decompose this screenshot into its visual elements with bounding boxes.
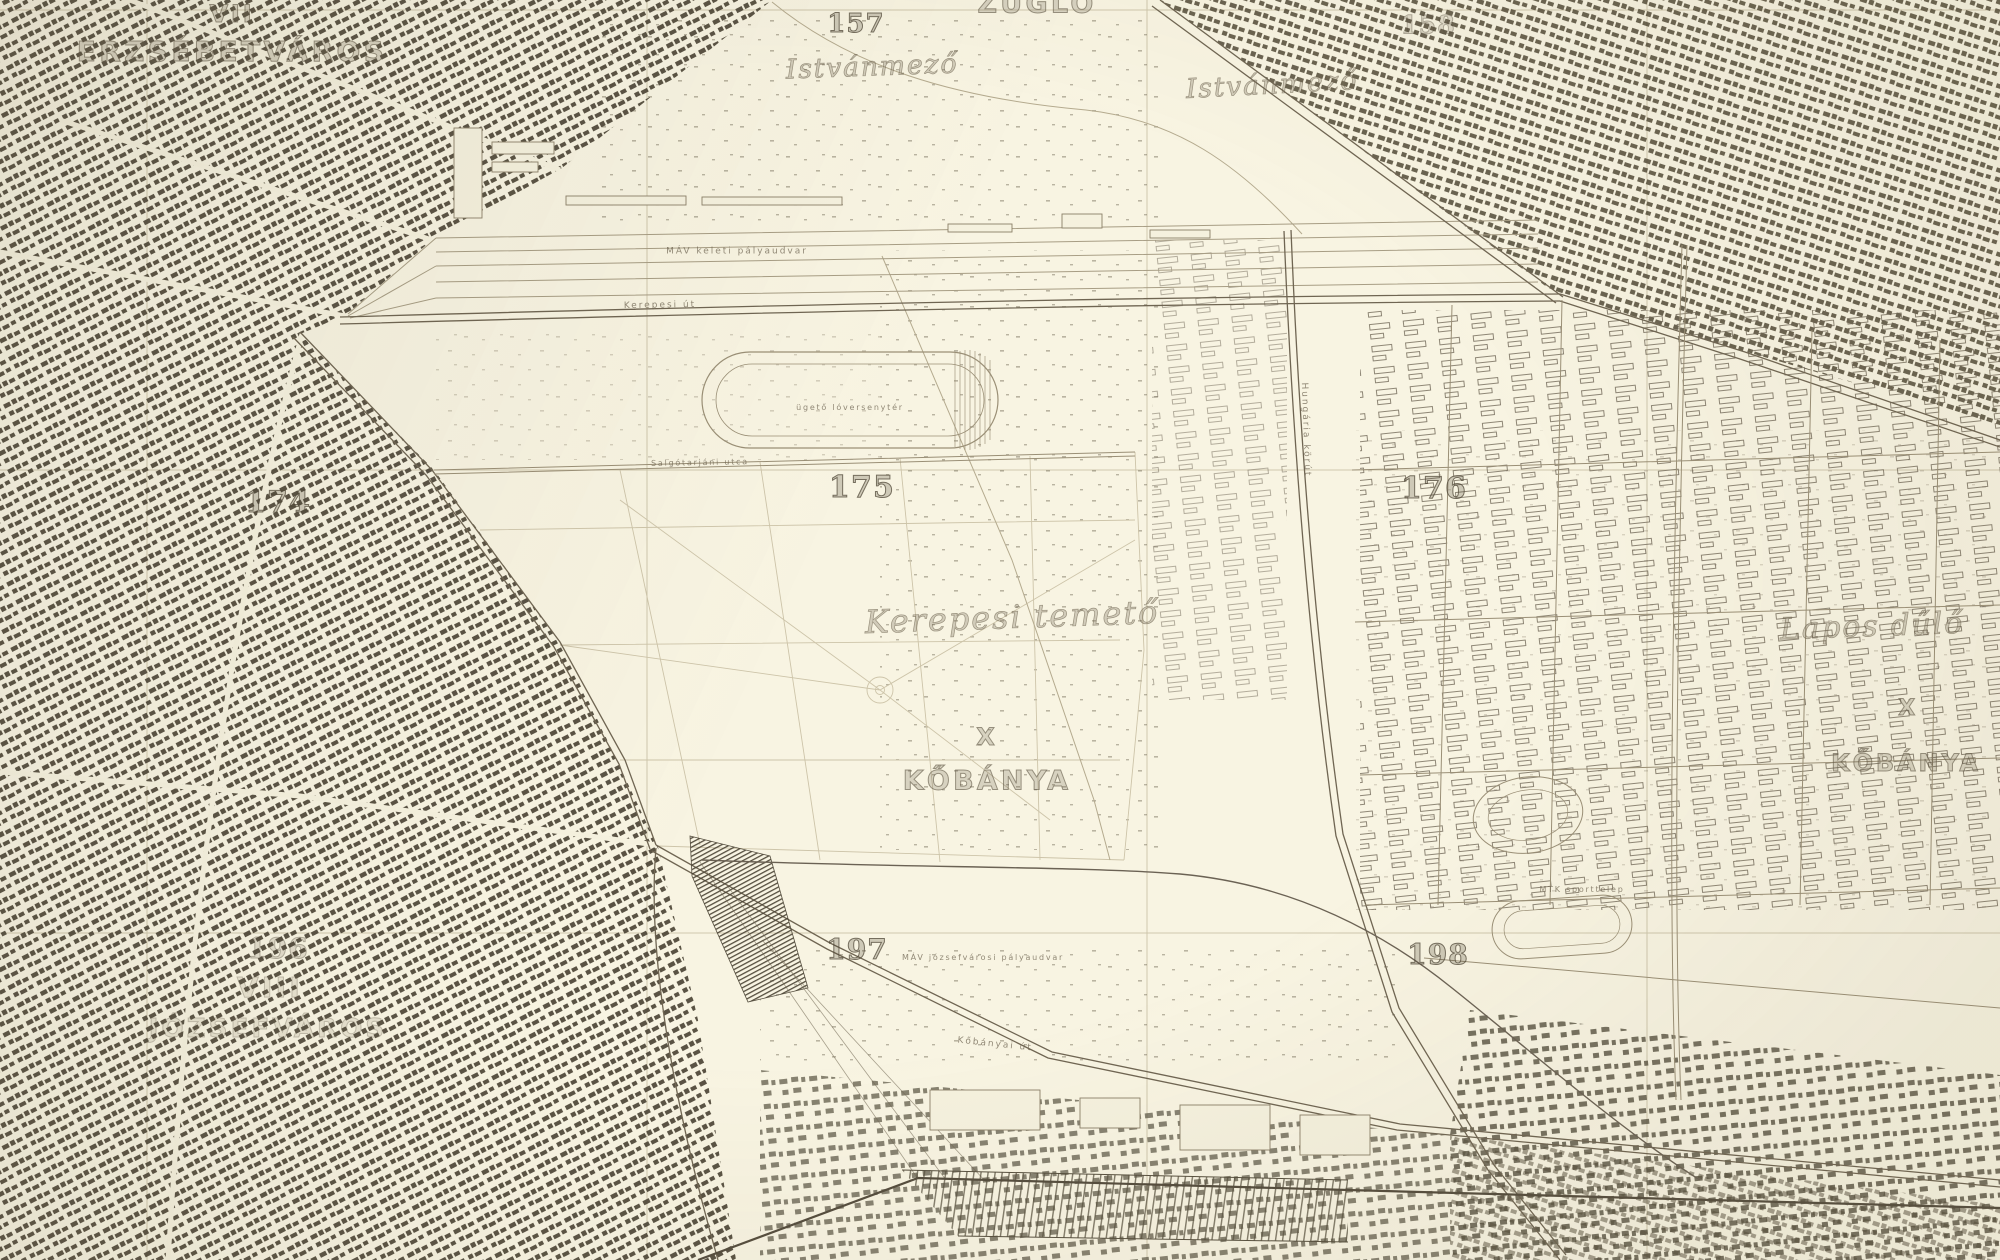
district-label-viii: VIII: [237, 974, 303, 1002]
district-label-kobanya-east: KŐBÁNYA: [1831, 751, 1981, 775]
district-label-zuglo: ZUGLÓ: [977, 0, 1096, 18]
minor-label-ugeto: ügető lóversenytér: [796, 404, 904, 412]
minor-label-mtk-sporttelep: MTK sporttelep: [1539, 886, 1624, 894]
district-label-jozsefvaros: JÓZSEFVÁROS: [149, 1016, 388, 1042]
district-label-vii: VII: [209, 2, 254, 26]
district-label-x-center: X: [976, 725, 997, 749]
street-label-salgotarjani-utca: Salgótarjáni utca: [651, 458, 749, 468]
grid-number-174: 174: [245, 488, 311, 518]
grid-number-175: 175: [829, 473, 895, 503]
street-label-kerepesi-ut: Kerepesi út: [624, 301, 696, 311]
grid-number-197: 197: [826, 936, 888, 964]
grid-number-176: 176: [1401, 474, 1467, 504]
place-label-kerepesi-temeto: Kerepesi temető: [864, 596, 1159, 638]
minor-label-mav-keleti: MÁV keleti pályaudvar: [666, 248, 808, 257]
minor-label-mav-jozsefvarosi: MÁV józsefvárosi pályaudvar: [902, 954, 1064, 962]
street-label-hungaria-korut: Hungária körút: [1299, 382, 1311, 477]
district-label-erzsebetvaros: ERZSÉBETVÁROS: [77, 38, 388, 66]
grid-number-158: 158: [1400, 13, 1455, 38]
place-label-istvanmezo-west: Istvánmező: [785, 51, 958, 84]
map-canvas: VII ERZSÉBETVÁROS 157 Istvánmező ZUGLÓ I…: [0, 0, 2000, 1260]
district-label-x-east: X: [1898, 698, 1918, 720]
grid-number-198: 198: [1407, 941, 1469, 969]
grid-number-157: 157: [827, 11, 884, 37]
grid-number-196: 196: [247, 935, 309, 963]
place-label-lapos-dulo: Lapos dűlő: [1779, 609, 1964, 645]
district-label-kobanya-center: KŐBÁNYA: [903, 768, 1072, 795]
